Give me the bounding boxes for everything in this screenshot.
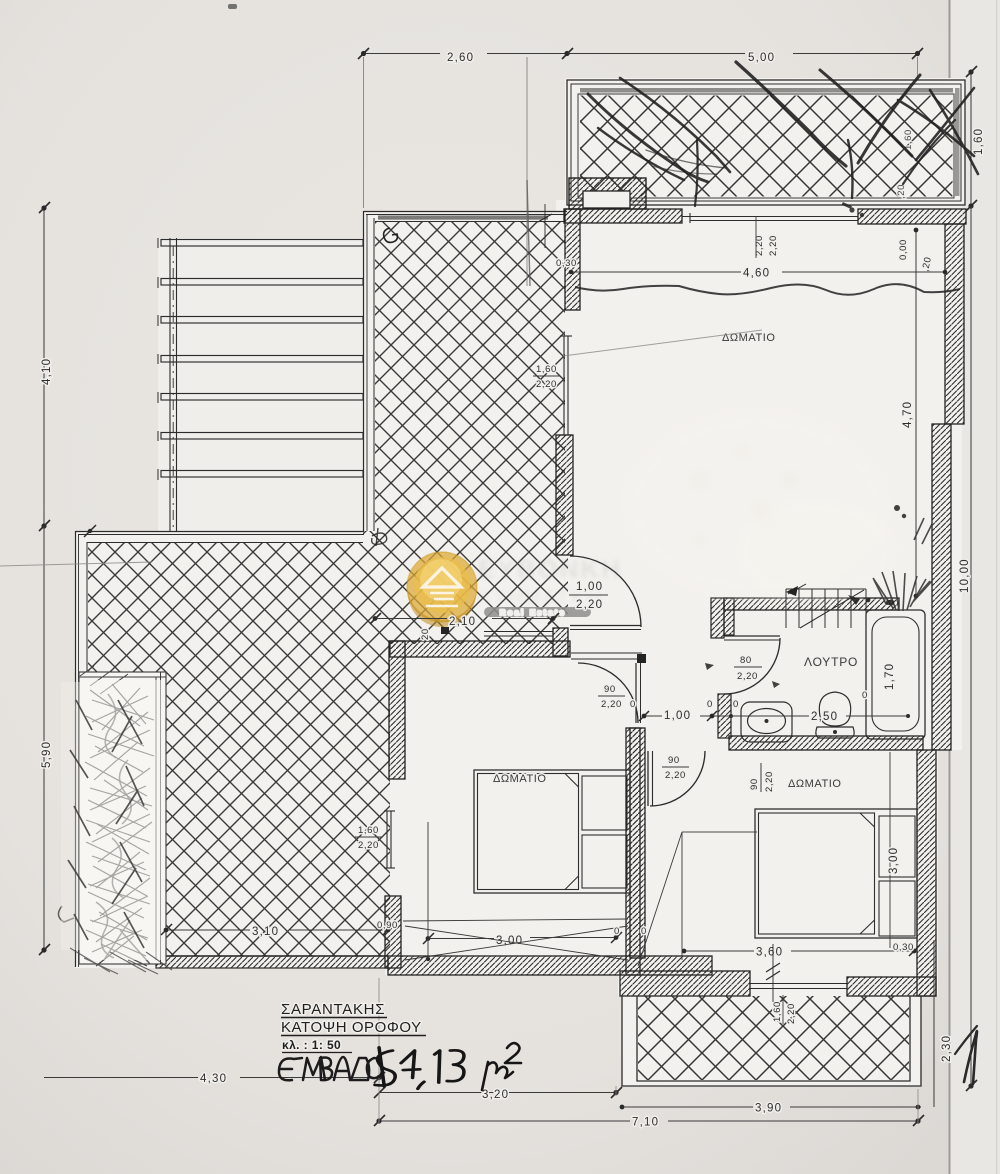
svg-text:2,20: 2,20 — [576, 599, 603, 611]
svg-text:κλ. : 1: 50: κλ. : 1: 50 — [282, 1038, 341, 1052]
svg-text:1,60: 1,60 — [358, 825, 379, 836]
svg-text:7,10: 7,10 — [632, 1117, 659, 1129]
svg-text:10,00: 10,00 — [959, 558, 971, 593]
svg-text:ΔΩΜΑΤΙΟ: ΔΩΜΑΤΙΟ — [493, 773, 546, 785]
svg-text:2,50: 2,50 — [811, 711, 838, 723]
svg-text:2,20: 2,20 — [536, 379, 557, 390]
svg-text:1,60: 1,60 — [772, 1001, 783, 1022]
svg-text:2,10: 2,10 — [449, 616, 476, 628]
svg-text:5,00: 5,00 — [748, 52, 775, 64]
svg-text:ΣΑΡΑΝΤΑΚΗΣ: ΣΑΡΑΝΤΑΚΗΣ — [281, 1001, 385, 1018]
svg-text:3,20: 3,20 — [482, 1089, 509, 1101]
svg-text:3,60: 3,60 — [756, 947, 783, 959]
svg-text:0: 0 — [733, 699, 739, 710]
svg-text:1,60: 1,60 — [973, 128, 985, 155]
svg-text:90: 90 — [668, 755, 680, 766]
svg-text:3,10: 3,10 — [252, 926, 279, 938]
svg-text:,20: ,20 — [896, 184, 907, 199]
svg-text:4,10: 4,10 — [41, 358, 53, 385]
svg-text:2,20: 2,20 — [358, 840, 379, 851]
svg-text:0: 0 — [641, 926, 647, 937]
svg-text:0: 0 — [630, 699, 636, 710]
svg-text:1,70: 1,70 — [884, 663, 896, 690]
svg-text:3,00: 3,00 — [888, 847, 900, 874]
svg-text:1,60: 1,60 — [536, 364, 557, 375]
svg-text:ΛΟΥΤΡΟ: ΛΟΥΤΡΟ — [804, 655, 858, 669]
svg-text:5,90: 5,90 — [41, 741, 53, 768]
svg-text:2,60: 2,60 — [447, 52, 474, 64]
svg-text:0: 0 — [862, 690, 868, 701]
svg-text:2,20: 2,20 — [737, 671, 758, 682]
svg-text:ΚΑΤΟΨΗ ΟΡΟΦΟΥ: ΚΑΤΟΨΗ ΟΡΟΦΟΥ — [281, 1019, 422, 1036]
svg-text:2,20: 2,20 — [764, 771, 775, 792]
svg-text:ΕΥΒΟΝΚΗ: ΕΥΒΟΝΚΗ — [478, 554, 622, 584]
svg-text:3,90: 3,90 — [755, 1103, 782, 1115]
svg-text:2,20: 2,20 — [665, 770, 686, 781]
svg-text:20: 20 — [420, 628, 431, 640]
svg-text:80: 80 — [740, 655, 752, 666]
svg-text:2,20: 2,20 — [768, 235, 779, 256]
svg-text:0,00: 0,00 — [898, 239, 909, 260]
svg-text:4,60: 4,60 — [743, 268, 770, 280]
svg-text:0: 0 — [614, 926, 620, 937]
svg-text:2,30: 2,30 — [941, 1035, 953, 1062]
svg-text:1,00: 1,00 — [664, 710, 691, 722]
svg-text:0: 0 — [707, 699, 713, 710]
svg-text:1,00: 1,00 — [576, 581, 603, 593]
svg-text:4,70: 4,70 — [902, 401, 914, 428]
svg-text:4,30: 4,30 — [200, 1073, 227, 1085]
svg-text:2,20: 2,20 — [601, 699, 622, 710]
svg-text:0,30: 0,30 — [893, 942, 914, 953]
svg-text:90: 90 — [749, 778, 760, 790]
svg-text:2,20: 2,20 — [786, 1003, 797, 1024]
svg-text:0,30: 0,30 — [556, 258, 577, 269]
svg-text:90: 90 — [604, 684, 616, 695]
svg-text:0,90: 0,90 — [377, 920, 398, 931]
svg-text:ΔΩΜΑΤΙΟ: ΔΩΜΑΤΙΟ — [788, 778, 841, 790]
